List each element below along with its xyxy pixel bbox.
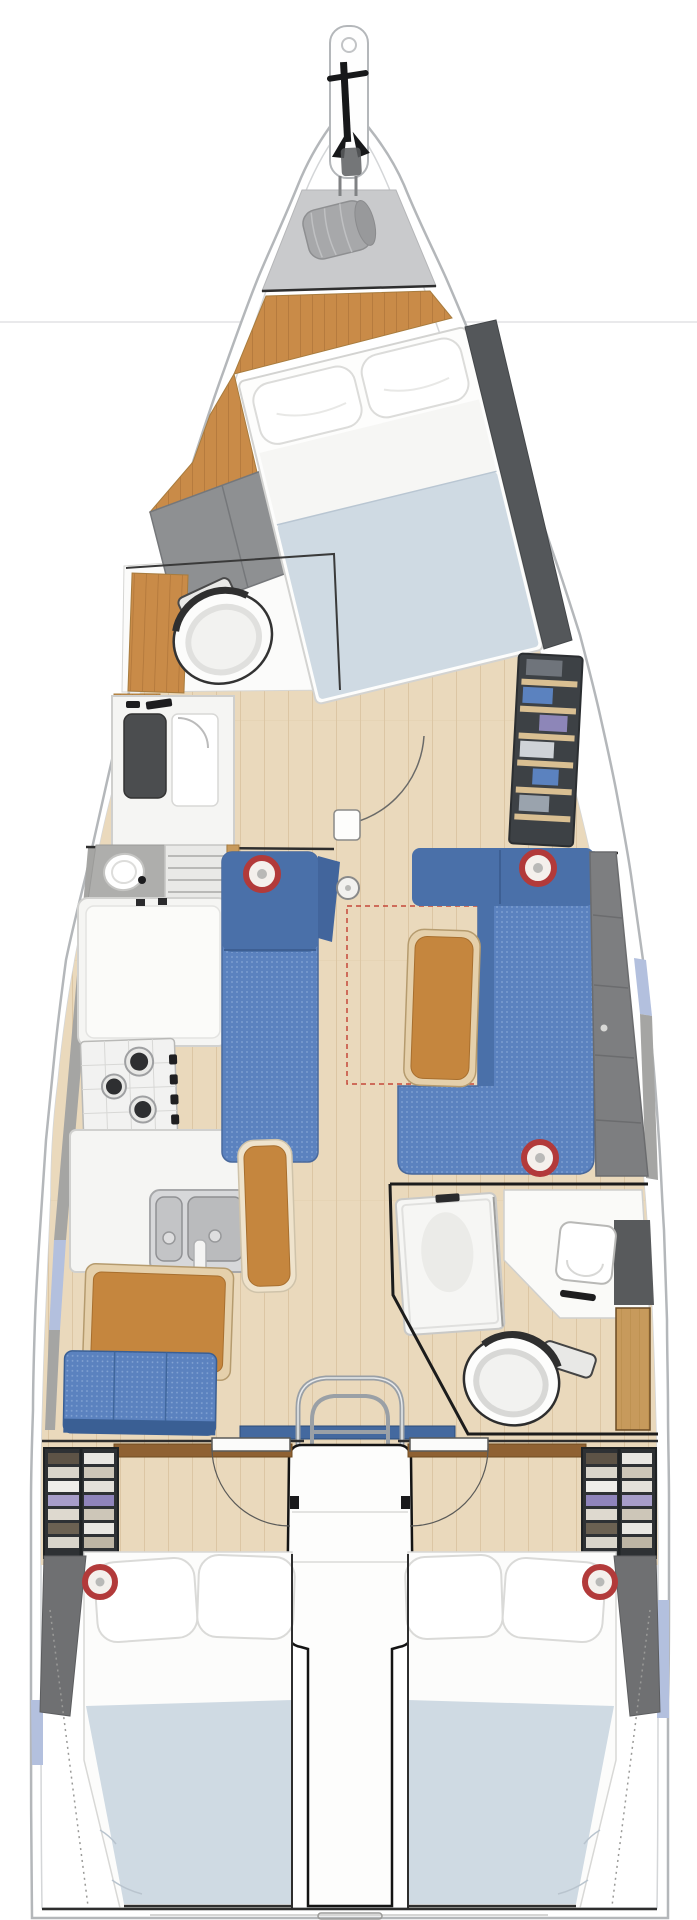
burner — [102, 1074, 127, 1099]
head-sink-dark — [124, 714, 166, 798]
double-sink — [150, 1190, 250, 1272]
mast-post — [337, 877, 359, 899]
cushion-button — [601, 1025, 608, 1032]
speaker-icon — [524, 1142, 556, 1174]
door-leaf — [334, 810, 360, 840]
wardrobe — [44, 1448, 118, 1558]
wardrobe — [582, 1448, 656, 1558]
burner — [125, 1047, 154, 1076]
saloon-table — [403, 929, 480, 1087]
pillow — [405, 1554, 504, 1639]
bookshelf — [509, 653, 583, 846]
speaker-icon — [246, 858, 278, 890]
pillow — [197, 1554, 296, 1639]
speaker-icon — [85, 1567, 115, 1597]
burner — [129, 1096, 156, 1123]
galley-cabinet — [78, 898, 228, 1046]
yacht-floor-plan: Sailboat interior deck plan, bow up — [0, 0, 697, 1920]
sofa-side-cushion — [478, 906, 494, 1086]
stove — [80, 1038, 179, 1135]
aft-head-counter-dark — [614, 1220, 654, 1305]
head-shower-tray — [172, 714, 218, 806]
aft-head-sink — [555, 1221, 617, 1285]
sofa-back-cushion — [412, 848, 594, 906]
aft-head-door — [616, 1308, 650, 1430]
aft-head-shower — [395, 1191, 504, 1336]
galley-faucet-dot — [138, 876, 146, 884]
speaker-icon — [522, 852, 554, 884]
nav-seat — [63, 1351, 216, 1436]
bow-roller-pin — [342, 38, 356, 52]
floor-plan-canvas: Sailboat interior deck plan, bow up — [0, 0, 697, 1920]
nav-station: Chart table with navigator seat — [63, 1263, 234, 1435]
shower-head — [435, 1193, 459, 1203]
speaker-icon — [585, 1567, 615, 1597]
ottoman — [237, 1139, 296, 1293]
